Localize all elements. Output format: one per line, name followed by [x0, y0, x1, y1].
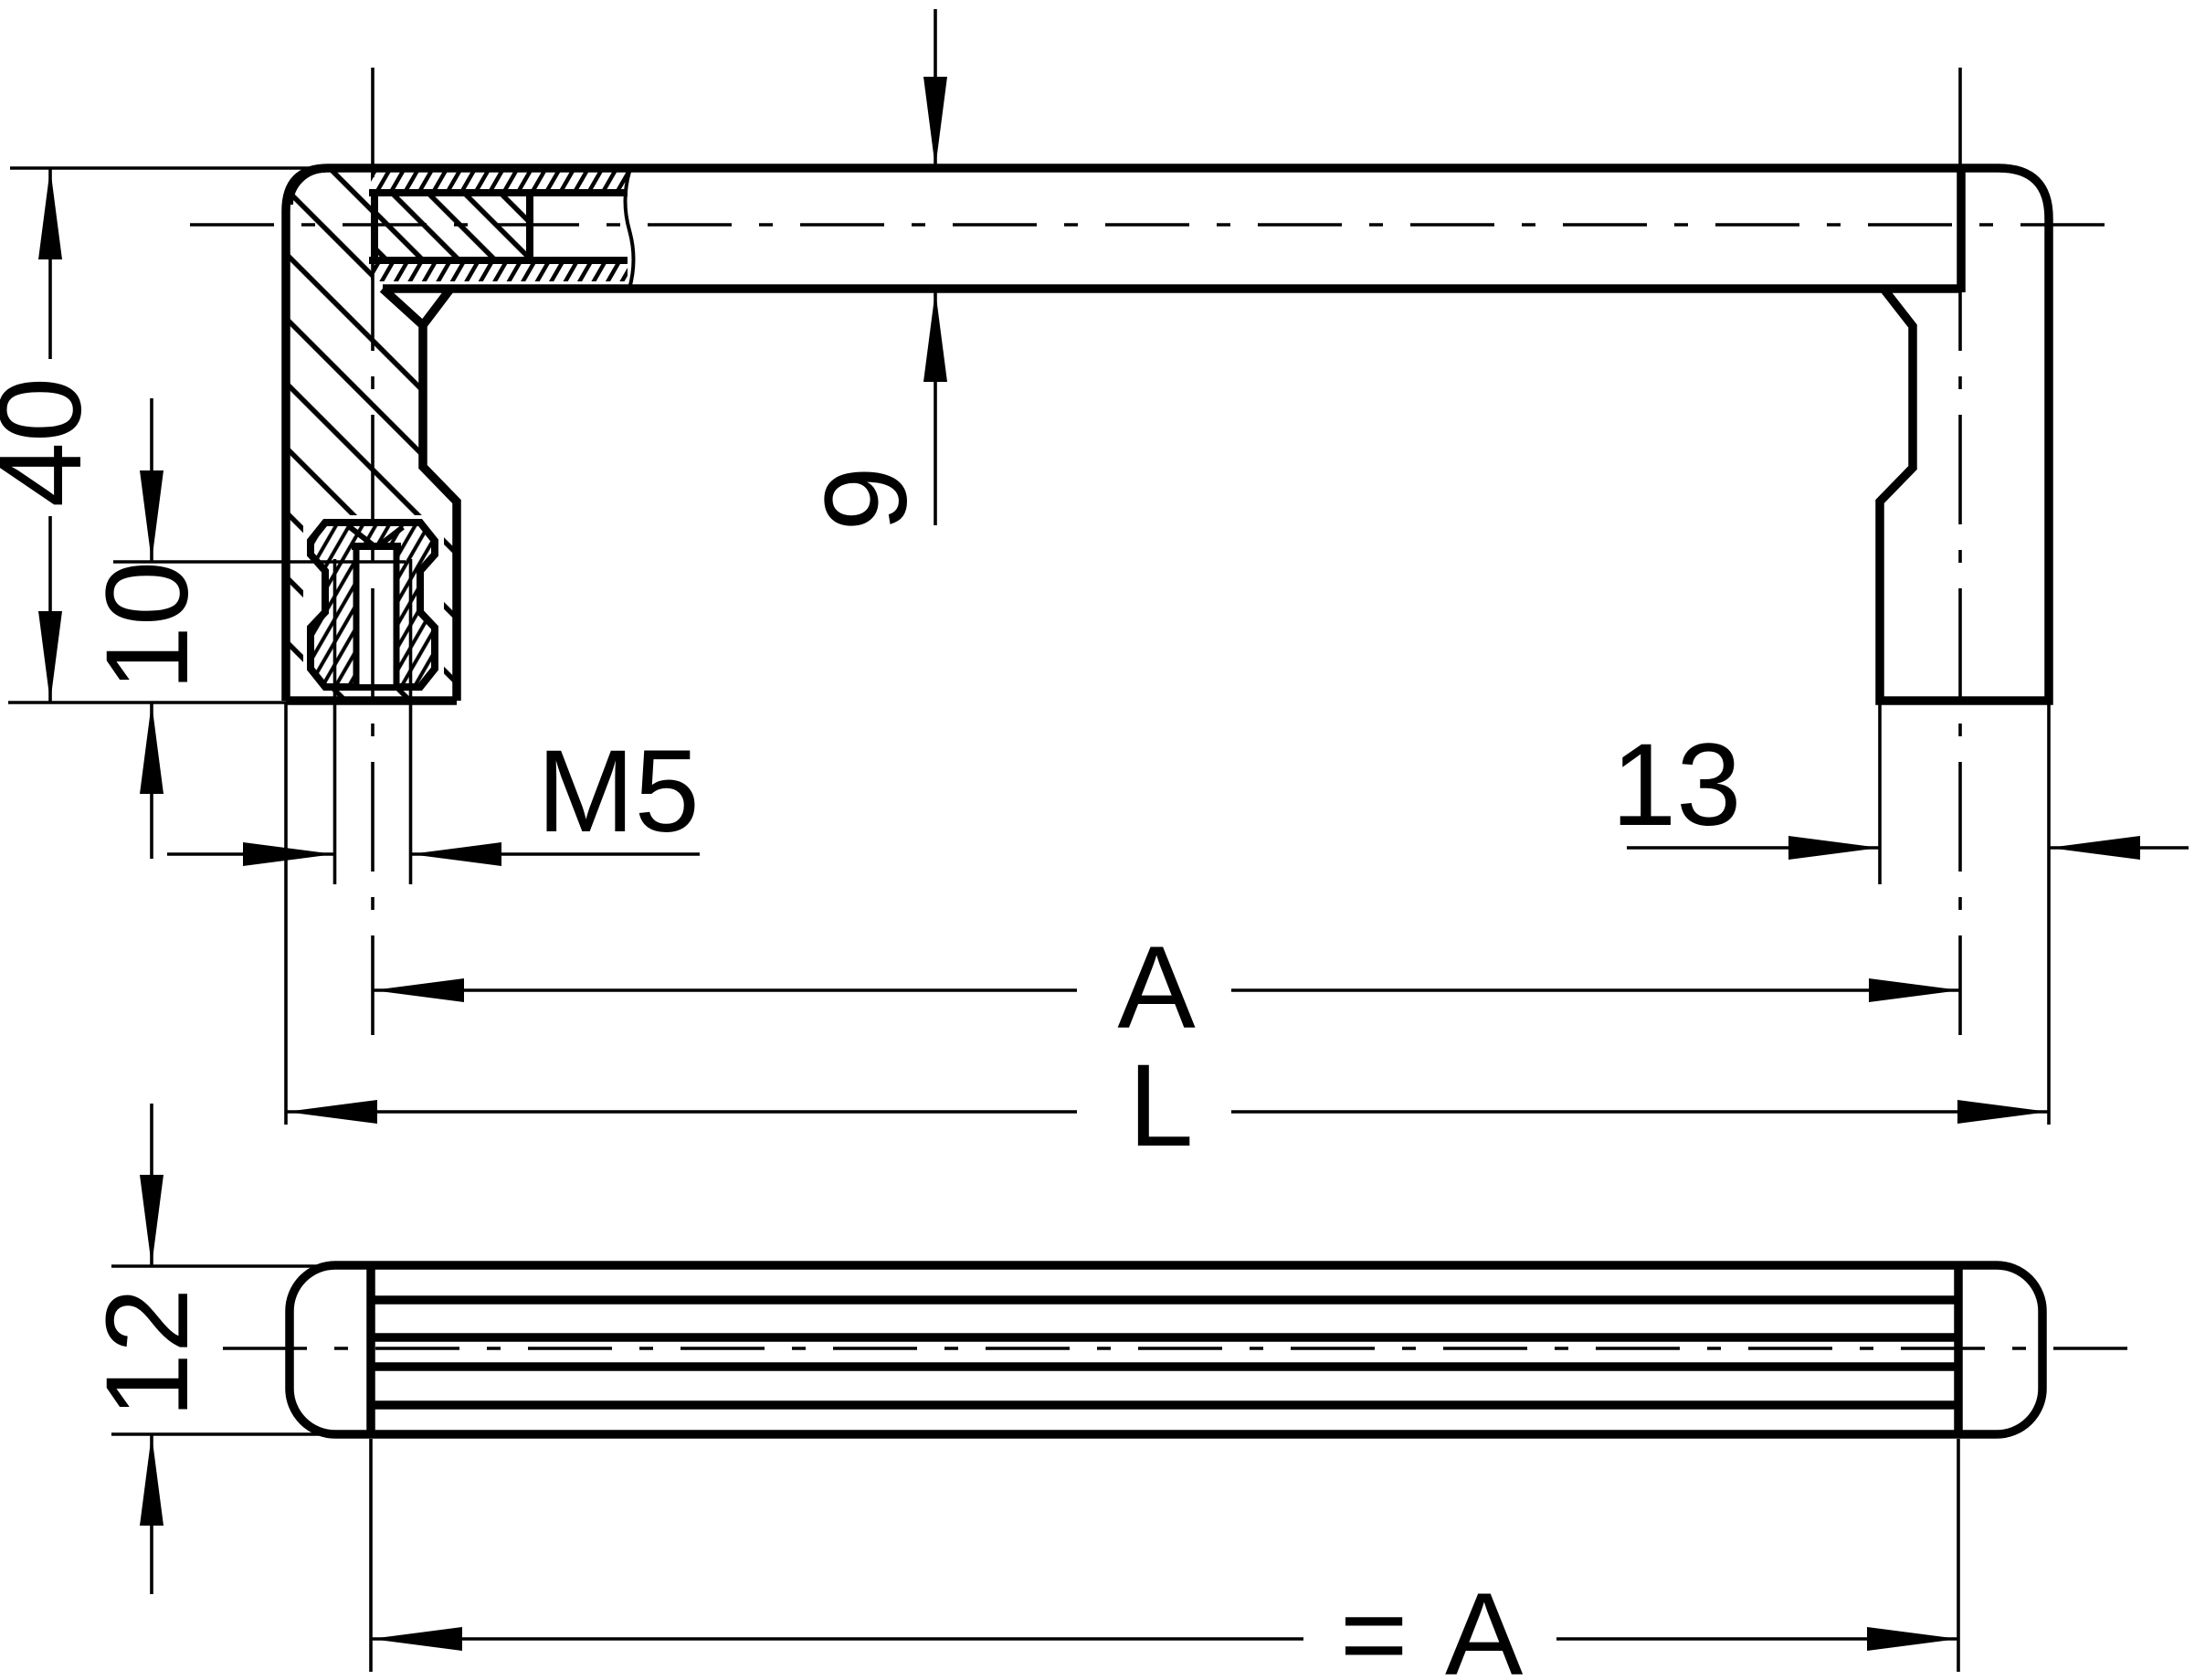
svg-text:12: 12	[82, 1288, 213, 1418]
svg-text:9: 9	[801, 466, 932, 531]
svg-text:10: 10	[82, 561, 213, 691]
svg-text:L: L	[1128, 1041, 1193, 1171]
svg-text:M5: M5	[537, 726, 700, 857]
svg-text:40: 40	[0, 377, 106, 507]
svg-text:A: A	[1117, 923, 1196, 1053]
svg-text:13: 13	[1611, 720, 1741, 851]
svg-text:= A: = A	[1340, 1569, 1529, 1680]
